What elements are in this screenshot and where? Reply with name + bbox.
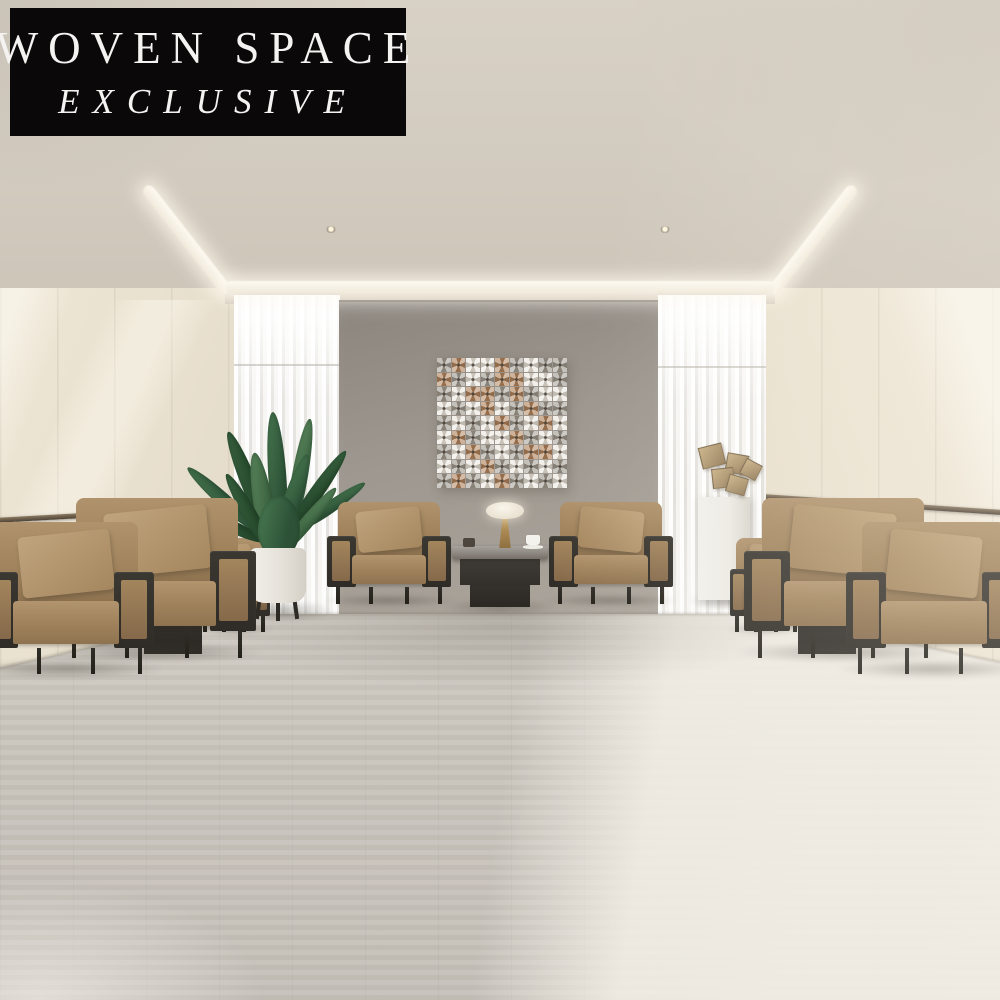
arm-panel — [554, 541, 572, 581]
chair-seat-cushion — [574, 555, 648, 584]
art-tile — [437, 402, 451, 416]
sculpture-cube — [698, 442, 727, 469]
art-tile — [452, 387, 466, 401]
arm-panel — [332, 541, 350, 581]
art-tile — [524, 416, 538, 430]
art-tile — [481, 445, 495, 459]
arm-panel — [752, 559, 781, 621]
art-tile — [437, 373, 451, 387]
art-tile — [539, 387, 553, 401]
art-tile — [510, 416, 524, 430]
art-tile — [539, 460, 553, 474]
window-transom — [234, 364, 340, 366]
arm-panel — [428, 541, 446, 581]
lounge-scene: WOVEN SPACE EXCLUSIVE — [0, 0, 1000, 1000]
armchair — [327, 502, 451, 604]
table-lamp-shade — [486, 502, 524, 519]
art-tile — [524, 402, 538, 416]
art-tile — [481, 416, 495, 430]
art-tile — [437, 445, 451, 459]
art-tile — [437, 387, 451, 401]
art-tile — [539, 416, 553, 430]
art-tile — [539, 445, 553, 459]
art-tile — [452, 431, 466, 445]
art-tile — [495, 387, 509, 401]
arm-panel — [989, 580, 1000, 639]
art-tile — [510, 460, 524, 474]
chair-pillow — [885, 528, 982, 598]
art-tile — [524, 460, 538, 474]
art-tile — [481, 431, 495, 445]
brand-banner: WOVEN SPACE EXCLUSIVE — [10, 8, 406, 136]
chair-pillow — [355, 506, 423, 553]
art-tile — [495, 474, 509, 488]
art-tile — [524, 474, 538, 488]
art-tile — [452, 416, 466, 430]
art-tile — [524, 358, 538, 372]
art-tile — [553, 416, 567, 430]
coffee-cup — [526, 535, 540, 545]
art-tile — [510, 387, 524, 401]
coffee-table — [460, 559, 540, 585]
art-tile — [539, 474, 553, 488]
armchair — [846, 522, 1000, 674]
pot-leg — [276, 603, 280, 621]
downlight-icon — [660, 226, 670, 233]
art-tile — [481, 373, 495, 387]
brand-tagline: EXCLUSIVE — [58, 82, 358, 122]
art-tile — [437, 460, 451, 474]
art-tile — [495, 431, 509, 445]
art-tile — [495, 402, 509, 416]
chair-pillow — [577, 506, 645, 553]
chair-seat-cushion — [352, 555, 426, 584]
art-tile — [452, 358, 466, 372]
arm-panel — [853, 580, 879, 639]
art-tile — [510, 445, 524, 459]
art-tile — [524, 431, 538, 445]
chair-seat-cushion — [881, 601, 987, 644]
art-tile — [452, 474, 466, 488]
art-tile — [495, 358, 509, 372]
art-tile — [553, 358, 567, 372]
art-tile — [495, 445, 509, 459]
art-tile — [452, 460, 466, 474]
armchair — [0, 522, 154, 674]
coffee-table-base — [470, 585, 530, 607]
chair-arm — [210, 551, 256, 631]
art-tile — [553, 445, 567, 459]
chair-arm — [422, 536, 451, 587]
small-cup — [463, 538, 475, 547]
art-tile — [553, 460, 567, 474]
art-tile — [437, 474, 451, 488]
wall-art — [437, 358, 567, 488]
chair-arm — [744, 551, 790, 631]
art-tile — [553, 402, 567, 416]
art-tile — [553, 474, 567, 488]
arm-panel — [121, 580, 147, 639]
art-tile — [481, 358, 495, 372]
art-tile — [437, 358, 451, 372]
art-tile — [510, 402, 524, 416]
art-tile — [466, 416, 480, 430]
art-tile — [553, 431, 567, 445]
art-tile — [510, 431, 524, 445]
art-tile — [539, 373, 553, 387]
art-tile — [466, 445, 480, 459]
art-tile — [481, 460, 495, 474]
arm-panel — [0, 580, 11, 639]
art-tile — [524, 387, 538, 401]
art-tile — [539, 358, 553, 372]
art-tile — [553, 387, 567, 401]
art-tile — [452, 445, 466, 459]
saucer — [523, 545, 543, 549]
chair-legs — [0, 648, 142, 674]
art-tile — [495, 373, 509, 387]
window-transom — [658, 366, 766, 368]
art-tile — [466, 474, 480, 488]
cove-light-bottom — [225, 281, 775, 293]
cube-sculpture — [694, 436, 764, 500]
art-tile — [466, 358, 480, 372]
art-tile — [510, 358, 524, 372]
arm-panel — [733, 574, 744, 611]
arm-panel — [650, 541, 668, 581]
art-tile — [466, 431, 480, 445]
downlight-icon — [326, 226, 336, 233]
art-tile — [510, 373, 524, 387]
chair-arm — [644, 536, 673, 587]
art-tile — [539, 402, 553, 416]
chair-seat-cushion — [13, 601, 119, 644]
armchair — [549, 502, 673, 604]
art-tile — [524, 373, 538, 387]
art-tile — [481, 387, 495, 401]
art-tile — [553, 373, 567, 387]
art-tile — [539, 431, 553, 445]
chair-pillow — [17, 528, 114, 598]
chair-legs — [558, 587, 665, 604]
art-tile — [466, 373, 480, 387]
art-tile — [452, 402, 466, 416]
sculpture-cube — [725, 474, 749, 497]
chair-legs — [858, 648, 1000, 674]
art-tile — [437, 416, 451, 430]
art-tile — [437, 431, 451, 445]
art-tile — [452, 373, 466, 387]
art-tile — [510, 474, 524, 488]
art-tile — [524, 445, 538, 459]
art-tile — [495, 460, 509, 474]
brand-name: WOVEN SPACE — [0, 22, 420, 74]
art-tile — [495, 416, 509, 430]
arm-panel — [219, 559, 248, 621]
art-tile — [466, 460, 480, 474]
chair-legs — [336, 587, 443, 604]
art-tile — [481, 474, 495, 488]
chair-arm — [114, 572, 154, 648]
art-tile — [481, 402, 495, 416]
art-tile — [466, 387, 480, 401]
art-tile — [466, 402, 480, 416]
plant-pot — [250, 548, 306, 603]
